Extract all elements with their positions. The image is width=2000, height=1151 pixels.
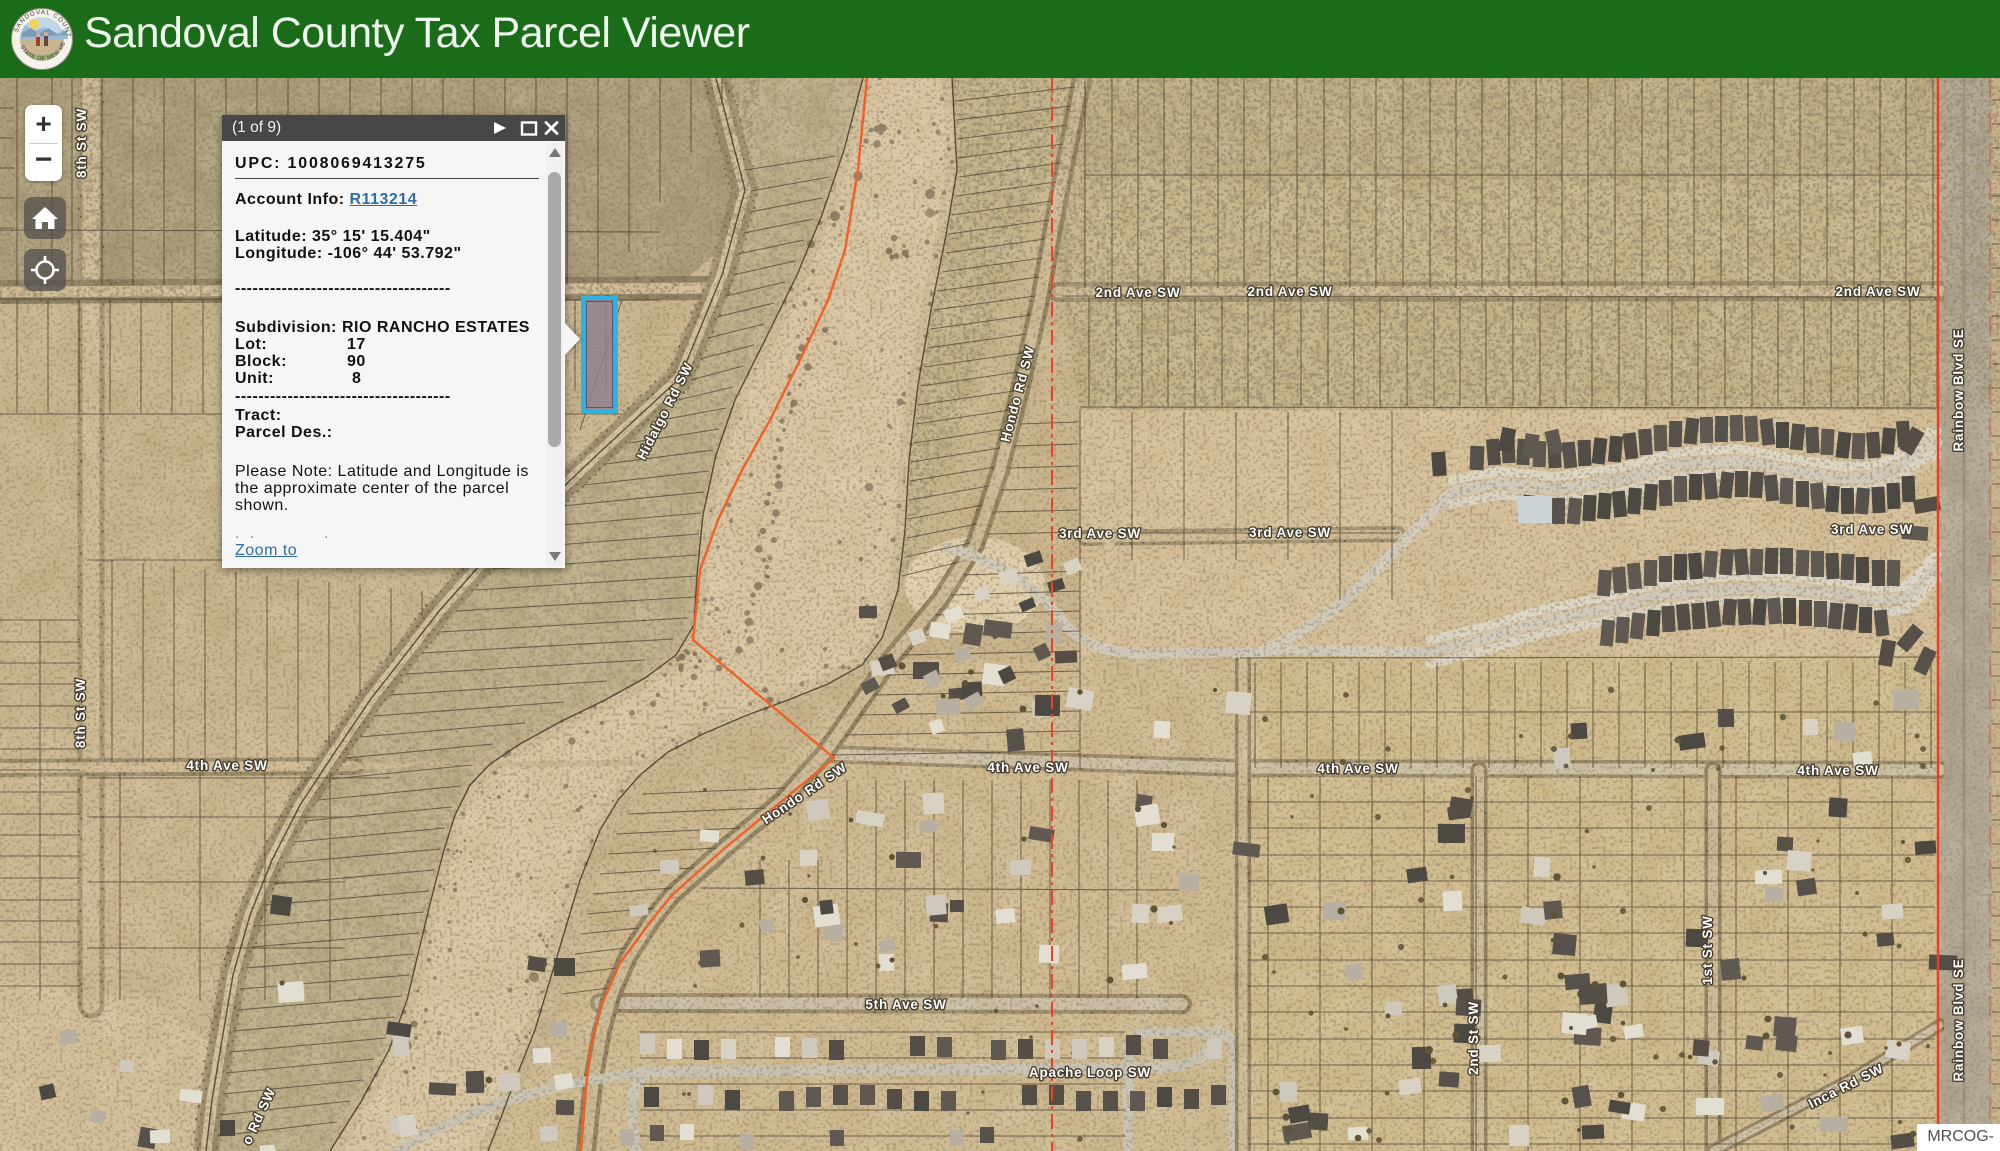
svg-text:2nd Ave SW: 2nd Ave SW — [1835, 284, 1920, 299]
svg-text:1st St SW: 1st St SW — [1700, 915, 1715, 984]
svg-text:3rd Ave SW: 3rd Ave SW — [1059, 526, 1141, 541]
svg-text:3rd Ave SW: 3rd Ave SW — [1249, 525, 1331, 540]
svg-text:4th Ave SW: 4th Ave SW — [186, 758, 267, 773]
svg-text:Rainbow Blvd SE: Rainbow Blvd SE — [1951, 958, 1966, 1081]
svg-text:Apache Loop SW: Apache Loop SW — [1029, 1065, 1151, 1080]
svg-text:Rainbow Blvd SE: Rainbow Blvd SE — [1951, 328, 1966, 451]
svg-text:2nd St SW: 2nd St SW — [1466, 1001, 1481, 1075]
svg-text:2nd Ave SW: 2nd Ave SW — [1095, 285, 1180, 300]
svg-text:4th Ave SW: 4th Ave SW — [1797, 763, 1878, 778]
svg-text:4th Ave SW: 4th Ave SW — [987, 760, 1068, 775]
svg-text:8th St SW: 8th St SW — [74, 108, 89, 178]
svg-text:8th St SW: 8th St SW — [73, 678, 88, 748]
svg-text:2nd Ave SW: 2nd Ave SW — [1247, 284, 1332, 299]
svg-text:5th Ave SW: 5th Ave SW — [865, 997, 946, 1012]
svg-text:3rd Ave SW: 3rd Ave SW — [1831, 522, 1913, 537]
svg-text:4th Ave SW: 4th Ave SW — [1317, 761, 1398, 776]
